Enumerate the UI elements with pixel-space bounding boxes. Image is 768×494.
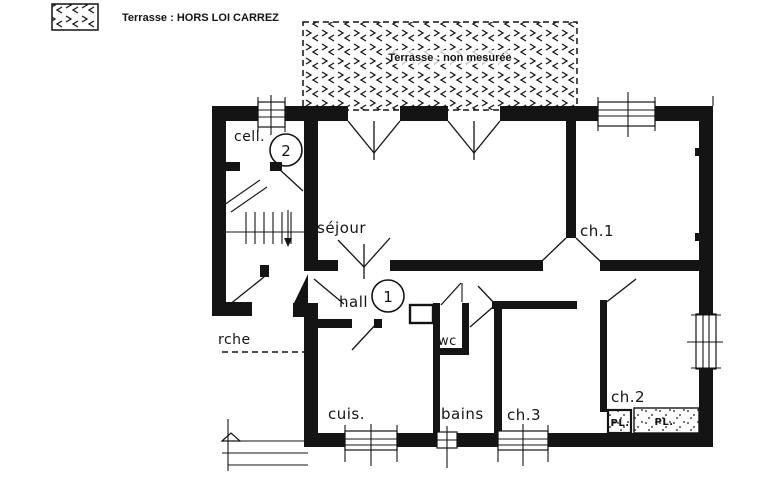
- porch-arrow: [222, 433, 240, 441]
- room-label-cell: cell.: [234, 129, 265, 145]
- entrance-door-leaf: [293, 274, 308, 305]
- terrace-french-door-2: [448, 121, 500, 160]
- room-label-ch2: ch.2: [611, 388, 645, 406]
- floor-plan-svg: Terrasse : HORS LOI CARREZ Terrasse : no…: [0, 0, 768, 494]
- wc-door-swing: [441, 283, 462, 305]
- room-label-hall: hall: [339, 293, 368, 311]
- window-bottom-cuis: [345, 424, 397, 466]
- ch2-door-swing: [604, 279, 636, 304]
- legend-label: Terrasse : HORS LOI CARREZ: [122, 12, 279, 24]
- room-label-wc: wc: [438, 334, 457, 349]
- window-top-ch1: [598, 92, 655, 137]
- lot-number-hall-text: 1: [383, 288, 393, 306]
- duct-box: [410, 305, 433, 323]
- lot-number-cell: 2: [270, 134, 302, 166]
- lot-number-hall: 1: [372, 280, 404, 312]
- legend-terrace-swatch: [52, 4, 98, 30]
- room-label-pl-small: PL.: [611, 418, 630, 429]
- floor-plan-page: Terrasse : HORS LOI CARREZ Terrasse : no…: [0, 0, 768, 494]
- legend: Terrasse : HORS LOI CARREZ: [52, 4, 279, 30]
- bains-door-swing: [470, 307, 493, 327]
- terrace-french-door-1: [348, 121, 400, 160]
- room-label-cuis: cuis.: [328, 405, 365, 423]
- porch-steps: [222, 352, 308, 471]
- window-right-ch2: [687, 314, 723, 369]
- room-label-ch3: ch.3: [507, 406, 541, 424]
- terrace-label: Terrasse : non mesurée: [388, 52, 511, 64]
- cuis-door-swing: [352, 322, 378, 350]
- terrace-area: Terrasse : non mesurée: [303, 22, 577, 110]
- cell-door-swing: [278, 168, 303, 191]
- ch1-door-swings: [541, 238, 601, 262]
- sejour-hall-double-door: [338, 238, 390, 279]
- ch3-door-swing: [478, 286, 495, 304]
- room-label-bains: bains: [441, 405, 484, 423]
- window-bottom-bains: [437, 426, 457, 468]
- lot-number-cell-text: 2: [281, 142, 291, 160]
- terrace-hatch: [303, 22, 577, 110]
- window-bottom-ch3: [498, 424, 548, 466]
- room-label-sejour: séjour: [317, 219, 366, 237]
- room-label-pl-large: PL.: [655, 417, 674, 428]
- stairs: [224, 180, 304, 247]
- room-label-porch: rche: [218, 332, 251, 348]
- room-label-ch1: ch.1: [580, 222, 614, 240]
